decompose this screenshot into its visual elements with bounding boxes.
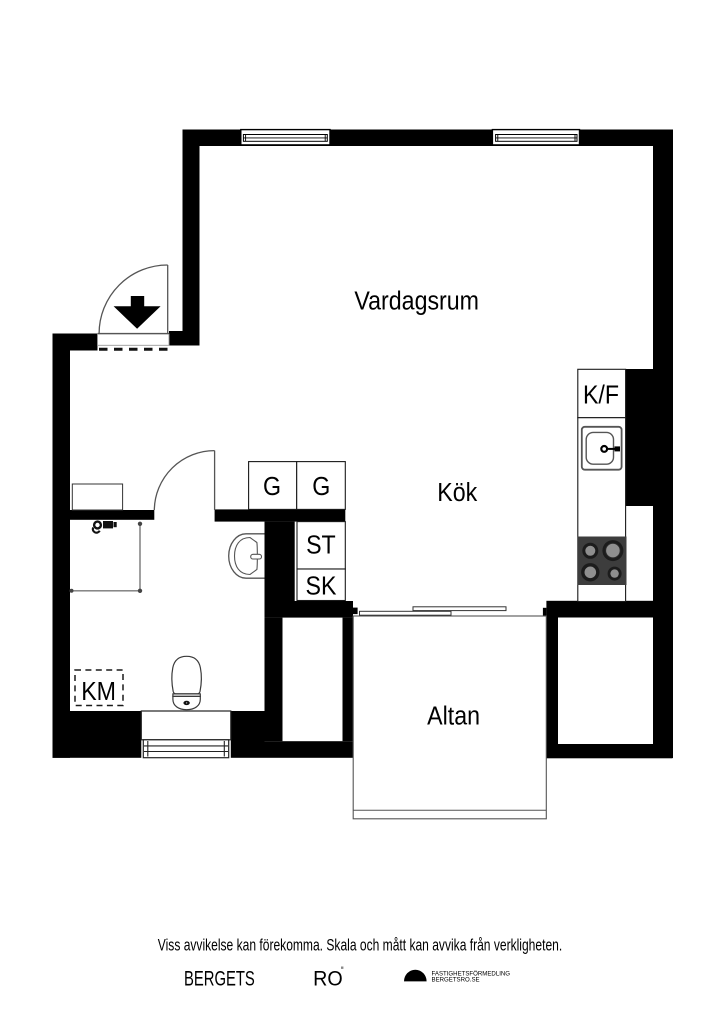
svg-text:BERGETS: BERGETS bbox=[184, 966, 255, 990]
svg-text:Viss avvikelse kan förekomma.: Viss avvikelse kan förekomma. Skala och … bbox=[158, 937, 562, 955]
svg-text:RO: RO bbox=[313, 967, 343, 991]
svg-text:Vardagsrum: Vardagsrum bbox=[354, 288, 479, 316]
svg-text:KM: KM bbox=[81, 678, 116, 706]
svg-text:SK: SK bbox=[306, 572, 337, 600]
svg-text:ST: ST bbox=[306, 531, 336, 559]
svg-text:K/F: K/F bbox=[583, 382, 619, 410]
svg-text:G: G bbox=[312, 473, 330, 501]
svg-text:BERGETSRO.SE: BERGETSRO.SE bbox=[432, 976, 480, 983]
svg-text:G: G bbox=[263, 473, 281, 501]
svg-text:Kök: Kök bbox=[437, 479, 478, 507]
svg-text:Altan: Altan bbox=[427, 702, 480, 730]
